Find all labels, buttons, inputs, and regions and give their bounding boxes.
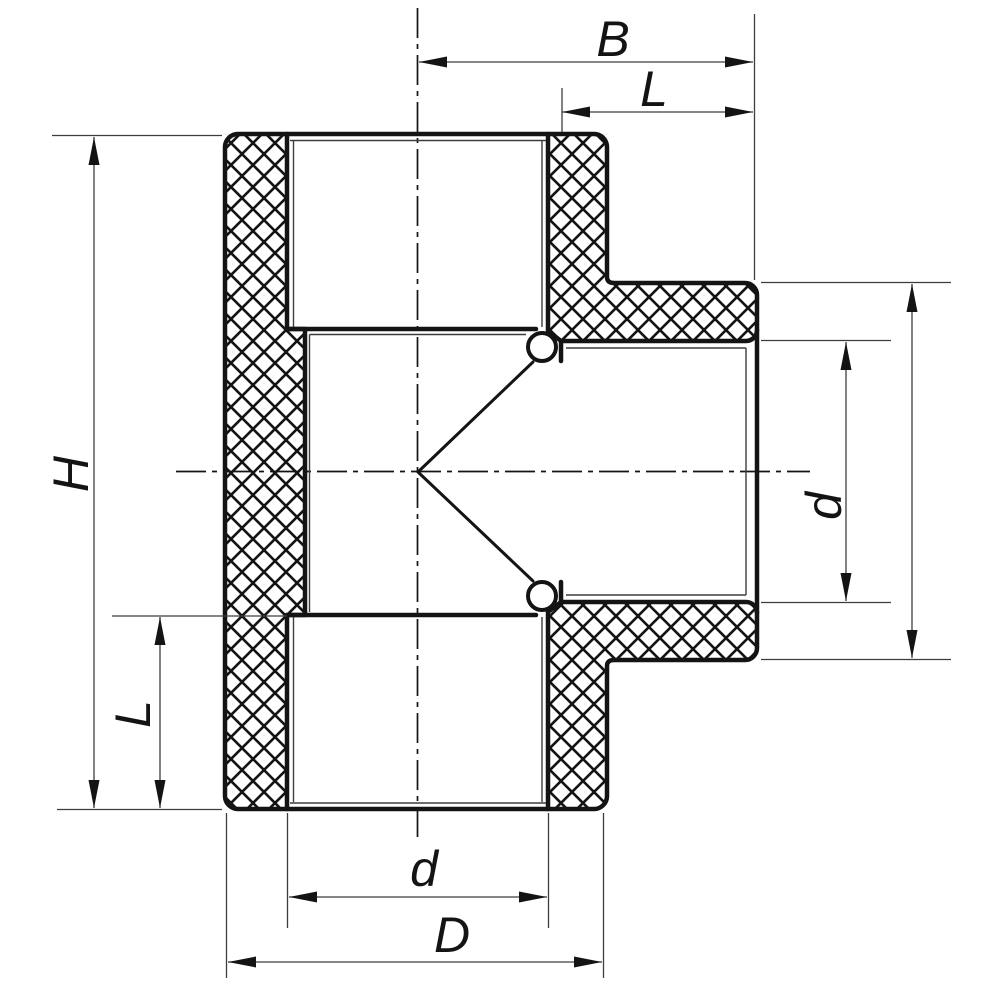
bore-cone-line-top bbox=[418, 362, 533, 472]
bore-cone-line-bottom bbox=[418, 472, 533, 581]
arrowhead-D-left bbox=[228, 957, 256, 968]
lower-right-wall-and-branch-bottom-section bbox=[548, 602, 757, 809]
dim-label-B: B bbox=[596, 11, 629, 67]
arrowhead-d-bottom-left bbox=[289, 892, 317, 903]
dim-label-L-bottom: L bbox=[105, 700, 161, 728]
arrowhead-H-top bbox=[89, 137, 100, 165]
arrowhead-d-branch-bottom bbox=[841, 573, 852, 601]
arrowhead-branch-outer-bottom bbox=[907, 630, 918, 658]
arrowhead-L-top-left bbox=[562, 107, 590, 118]
inner-fillet-radius-top bbox=[528, 333, 556, 361]
arrowhead-B-right bbox=[725, 57, 753, 68]
dim-label-H: H bbox=[43, 455, 99, 492]
inner-fillet-radius-bottom bbox=[528, 582, 556, 610]
upper-right-wall-and-branch-top-section bbox=[548, 134, 757, 341]
tee-fitting-drawing: B L H L d bbox=[0, 0, 1000, 1000]
dim-label-D: D bbox=[434, 907, 470, 963]
dimension-L-top: L bbox=[562, 61, 753, 132]
dim-label-d-bottom: d bbox=[410, 841, 440, 897]
arrowhead-B-left bbox=[419, 57, 447, 68]
technical-drawing-page: B L H L d bbox=[0, 0, 1000, 1000]
arrowhead-d-bottom-right bbox=[519, 892, 547, 903]
arrowhead-L-bottom-top bbox=[155, 617, 166, 645]
arrowhead-D-right bbox=[574, 957, 602, 968]
dim-label-d-branch: d bbox=[796, 490, 852, 520]
arrowhead-L-bottom-bottom bbox=[155, 780, 166, 808]
arrowhead-L-top-right bbox=[725, 107, 753, 118]
tee-fitting-body bbox=[225, 134, 757, 809]
dim-label-L-top: L bbox=[640, 61, 668, 117]
arrowhead-d-branch-top bbox=[841, 342, 852, 370]
arrowhead-H-bottom bbox=[89, 780, 100, 808]
arrowhead-branch-outer-top bbox=[907, 284, 918, 312]
